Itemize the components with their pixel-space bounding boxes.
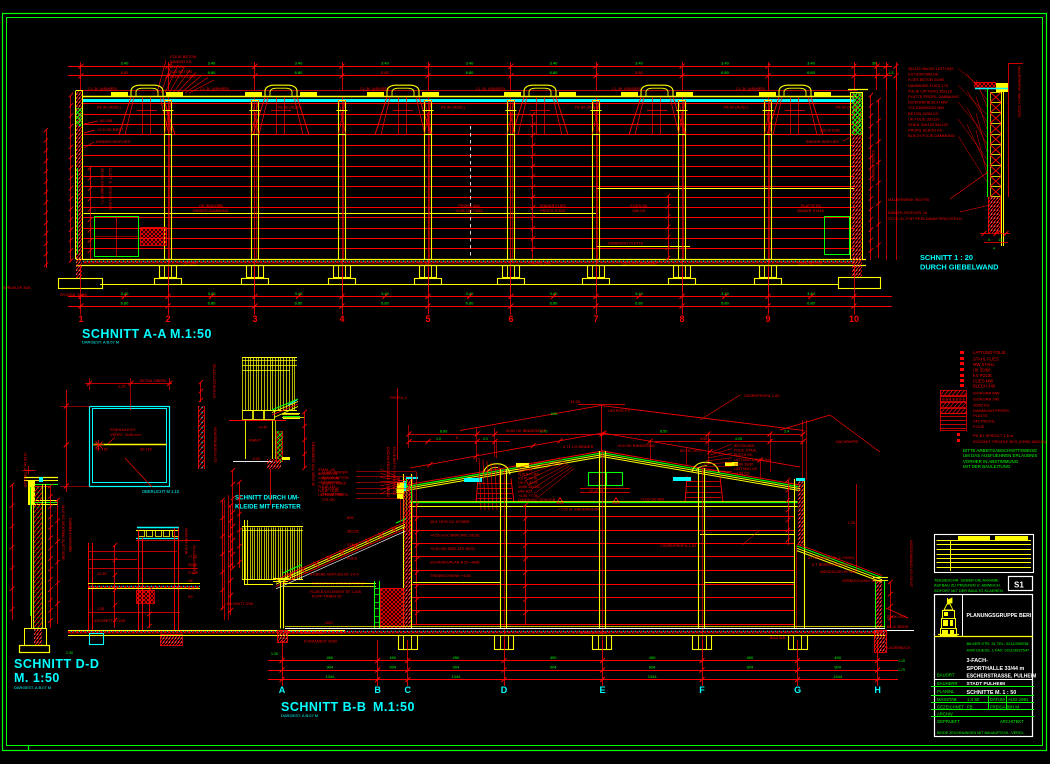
svg-text:PE 80 (AUSL): PE 80 (AUSL) [278, 106, 303, 110]
svg-text:6.80: 6.80 [121, 70, 130, 75]
svg-text:+8.80 OK BINDER/DAF: +8.80 OK BINDER/DAF [505, 428, 547, 433]
svg-text:MASSTAB: MASSTAB [937, 697, 957, 702]
svg-text:+8.5 OK BINDER/DN: +8.5 OK BINDER/DN [617, 443, 655, 448]
svg-text:904: 904 [834, 664, 841, 669]
svg-text:14.30: 14.30 [570, 399, 581, 404]
svg-text:GLATT B. SPIEGELROS: GLATT B. SPIEGELROS [108, 168, 112, 211]
svg-text:ALLE KS SICHTMW GLATT VERF: ALLE KS SICHTMW GLATT VERF [61, 505, 65, 561]
svg-text:S1: S1 [1014, 581, 1024, 590]
svg-text:PE 80 (AUSL): PE 80 (AUSL) [97, 106, 122, 110]
svg-text:8O OK 26TO: 8O OK 26TO [680, 449, 702, 453]
svg-text:KNAFT: KNAFT [249, 439, 262, 443]
svg-text:M.1:50: M.1:50 [170, 327, 212, 341]
svg-text:30: 30 [872, 62, 876, 66]
svg-text:4.05: 4.05 [735, 437, 742, 441]
svg-text:MW UK: MW UK [632, 209, 646, 213]
svg-text:4000 DUESS. 1 FAX: 0211/393: 4000 DUESS. 1 FAX: 0211/3937547 [967, 648, 1030, 653]
svg-text:MW STAHL: MW STAHL [973, 362, 995, 367]
svg-text:KS-MAUERWERK: KS-MAUERWERK [871, 150, 875, 182]
svg-text:45.8 +BTK DC DFWBR: 45.8 +BTK DC DFWBR [430, 520, 470, 524]
svg-text:D: D [501, 685, 508, 695]
svg-text:PLATTE KS: PLATTE KS [801, 204, 822, 208]
svg-text:+7.05: +7.05 [188, 555, 197, 559]
svg-text:+7.05 M. MAUERWERK: +7.05 M. MAUERWERK [558, 507, 600, 512]
svg-text:ISOKORB 175 BL: ISOKORB 175 BL [184, 528, 188, 555]
svg-text:BINDER FLIES: BINDER FLIES [540, 204, 566, 208]
svg-text:3.40: 3.40 [635, 61, 644, 66]
svg-text:ISOKORB BLECH 175: ISOKORB BLECH 175 [213, 427, 217, 462]
svg-text:SK 150: SK 150 [96, 448, 108, 452]
svg-text:6.80: 6.80 [721, 300, 730, 305]
svg-text:450: 450 [834, 655, 841, 660]
svg-text:3.40: 3.40 [466, 61, 475, 66]
svg-text:ANSCHLUSS KF BNE: ANSCHLUSS KF BNE [820, 570, 857, 574]
svg-text:4.05: 4.05 [700, 437, 707, 441]
svg-text:FOLIE: FOLIE [188, 571, 199, 575]
svg-text:B25: B25 [347, 516, 354, 520]
svg-text:(20)-IK ROB: (20)-IK ROB [820, 129, 840, 133]
svg-text:175 DAMMUNG MW: 175 DAMMUNG MW [908, 105, 944, 110]
svg-text:BINDER-ISOFLIES 2a: BINDER-ISOFLIES 2a [888, 210, 928, 215]
svg-text:1344: 1344 [648, 674, 658, 679]
svg-text:6.80: 6.80 [295, 70, 304, 75]
svg-text:-0.02: -0.02 [252, 457, 260, 461]
svg-text:UK FOLIE 35x120: UK FOLIE 35x120 [908, 116, 940, 121]
svg-text:PROFIL FOLIE: PROFIL FOLIE [540, 209, 566, 213]
svg-text:3.40: 3.40 [807, 61, 816, 66]
svg-text:GEWINDEST M12 VERZ 30: GEWINDEST M12 VERZ 30 [311, 442, 315, 486]
svg-text:CL-3K (ARMIER): CL-3K (ARMIER) [476, 87, 506, 91]
svg-text:1.5: 1.5 [889, 71, 894, 75]
svg-text:904: 904 [746, 664, 753, 669]
svg-text:450: 450 [649, 655, 656, 660]
svg-text:PE 80 (AUSL): PE 80 (AUSL) [575, 106, 600, 110]
svg-text:3.40: 3.40 [807, 291, 816, 296]
svg-text:PLANUNGSGRUPPE BERI: PLANUNGSGRUPPE BERI [967, 613, 1032, 619]
svg-text:BETON 30/60 KS: BETON 30/60 KS [908, 111, 939, 116]
svg-text:FB: FB [967, 704, 973, 709]
svg-text:35x120: 35x120 [347, 530, 359, 534]
svg-text:FOLIE STAHL: FOLIE STAHL [734, 449, 757, 453]
svg-text:3.40: 3.40 [635, 291, 644, 296]
svg-text:FLIES: FLIES [347, 557, 358, 561]
svg-text:G: G [794, 685, 801, 695]
svg-text:1 BORDPROFIL 1-60: 1 BORDPROFIL 1-60 [660, 544, 696, 548]
svg-text:E: E [599, 685, 605, 695]
svg-text:9: 9 [765, 314, 770, 324]
svg-text:30/60 30/60: 30/60 30/60 [734, 462, 753, 466]
svg-text:6.80: 6.80 [121, 300, 130, 305]
svg-text:6.80: 6.80 [550, 300, 559, 305]
svg-text:KLIPP-TRAEG 30: KLIPP-TRAEG 30 [312, 595, 342, 599]
svg-text:BILD B/B: BILD B/B [770, 636, 786, 640]
svg-text:40 15 40: 40 15 40 [589, 489, 603, 493]
svg-text:LATTUNG PROFIL: LATTUNG PROFIL [318, 493, 348, 497]
svg-text:6: 6 [508, 314, 513, 324]
svg-text:CL-3K (ARMIER): CL-3K (ARMIER) [88, 87, 118, 91]
svg-text:BETON DAMMUNG: BETON DAMMUNG [623, 261, 657, 265]
svg-text:904: 904 [550, 664, 557, 669]
svg-text:C: C [405, 685, 412, 695]
svg-text:35 ISO KS-MW 24 FL: 35 ISO KS-MW 24 FL [100, 168, 104, 205]
svg-text:SCHNITT DURCH UM-: SCHNITT DURCH UM- [235, 495, 299, 502]
svg-text:3.40: 3.40 [121, 291, 130, 296]
svg-text:3.40: 3.40 [295, 61, 304, 66]
svg-text:KS: KS [188, 595, 193, 599]
svg-text:450: 450 [746, 655, 753, 660]
svg-text:1.30: 1.30 [271, 652, 278, 656]
svg-text:15: 15 [998, 238, 1002, 242]
svg-text:6.80: 6.80 [208, 300, 217, 305]
svg-text:DAMMUNG FLIES 175: DAMMUNG FLIES 175 [908, 83, 948, 88]
svg-text:5: 5 [425, 314, 430, 324]
svg-text:450: 450 [453, 655, 460, 660]
svg-text:240 PROFIL: 240 PROFIL [973, 419, 996, 424]
svg-text:PROFIL MW: PROFIL MW [458, 204, 480, 208]
svg-text:3-FACH-: 3-FACH- [967, 658, 988, 664]
svg-text:450: 450 [326, 655, 333, 660]
svg-text:I-BORDPROFIL 1-60: I-BORDPROFIL 1-60 [744, 394, 780, 398]
svg-text:2.4: 2.4 [784, 430, 789, 434]
svg-text:14.35: 14.35 [97, 572, 107, 576]
svg-text:LATTUNG UK: LATTUNG UK [734, 467, 758, 471]
svg-text:1.35: 1.35 [97, 607, 104, 611]
svg-text:UK: UK [188, 579, 194, 583]
svg-text:SCHNITT B-B: SCHNITT B-B [281, 700, 366, 714]
svg-text:606: 606 [551, 412, 557, 416]
svg-text:OBERLICHT M 1:10: OBERLICHT M 1:10 [142, 489, 180, 494]
svg-text:PLATTE PROFIL DAMMUNG: PLATTE PROFIL DAMMUNG [908, 94, 959, 99]
svg-text:DARGEST. A B.07 M: DARGEST. A B.07 M [82, 340, 119, 345]
svg-text:6.80: 6.80 [466, 300, 475, 305]
svg-text:LATTUNG DAMMUNG: LATTUNG DAMMUNG [734, 458, 772, 462]
svg-text:F: F [699, 685, 705, 695]
svg-text:6.80: 6.80 [295, 300, 304, 305]
svg-text:B: B [374, 685, 381, 695]
svg-text:6.80: 6.80 [807, 70, 816, 75]
svg-text:30/60: 30/60 [188, 563, 197, 567]
svg-text:6.80: 6.80 [208, 70, 217, 75]
svg-text:450: 450 [389, 655, 396, 660]
svg-text:3.40: 3.40 [721, 291, 730, 296]
svg-text:UNTERS P.3: UNTERS P.3 [608, 409, 630, 413]
svg-text:-ASCHNITT 0/28: -ASCHNITT 0/28 [225, 602, 253, 606]
svg-text:6.80: 6.80 [635, 70, 644, 75]
svg-text:TRENNSCHIENE +4.85: TRENNSCHIENE +4.85 [430, 574, 471, 578]
svg-text:3.40: 3.40 [295, 291, 304, 296]
svg-text:1.30: 1.30 [66, 651, 73, 655]
svg-text:1.25: 1.25 [848, 521, 855, 525]
svg-text:GEZEICHNET: GEZEICHNET [937, 704, 964, 709]
svg-text:AUSSENWAND KS-SICHT: AUSSENWAND KS-SICHT [909, 540, 914, 588]
svg-text:BETON B25: BETON B25 [734, 444, 754, 448]
svg-text:ARCHITEKT: ARCHITEKT [1000, 719, 1024, 724]
svg-text:A: A [279, 685, 286, 695]
svg-text:FLIES OK: FLIES OK [630, 204, 648, 208]
svg-text:H: H [874, 685, 881, 695]
svg-text:BINDER-ISOFLIES: BINDER-ISOFLIES [96, 139, 131, 144]
svg-text:FUNDAMENT 30/60: FUNDAMENT 30/60 [304, 640, 337, 644]
svg-text:30/60 BETON: 30/60 BETON [798, 261, 822, 265]
svg-text:450: 450 [550, 655, 557, 660]
svg-text:+4.55 LATTUNG: +4.55 LATTUNG [455, 209, 483, 213]
svg-text:3.40: 3.40 [550, 291, 559, 296]
svg-text:6.80: 6.80 [466, 70, 475, 75]
svg-text:ASCHNITT B 0/28: ASCHNITT B 0/28 [94, 619, 125, 623]
svg-text:ATTERRAND (BK 2. FUGE): ATTERRAND (BK 2. FUGE) [808, 556, 854, 560]
svg-text:UG2: UG2 [325, 621, 333, 625]
svg-text:ISOKORB BLECH MW: ISOKORB BLECH MW [908, 100, 948, 105]
svg-text:KLEIDE MIT FENSTER: KLEIDE MIT FENSTER [235, 504, 301, 511]
svg-text:M. 1:50: M. 1:50 [14, 671, 60, 685]
svg-text:PROFIL BLECH KS: PROFIL BLECH KS [908, 128, 943, 133]
svg-text:3.40: 3.40 [550, 61, 559, 66]
svg-text:3.40: 3.40 [381, 291, 390, 296]
svg-text:DARGEST. A B.07 M: DARGEST. A B.07 M [281, 713, 318, 718]
svg-text:BEIDE ZEICHNUNGEN MIT BAUAUFSC: BEIDE ZEICHNUNGEN MIT BAUAUFSCHL. VERGL. [937, 731, 1025, 735]
svg-text:AUG.1991: AUG.1991 [1008, 697, 1029, 702]
svg-text:FREIGAB: FREIGAB [990, 704, 1009, 709]
svg-text:BAUORT: BAUORT [937, 673, 955, 678]
svg-text:1344: 1344 [833, 674, 843, 679]
svg-text:904: 904 [326, 664, 333, 669]
svg-text:ISOKORB 240: ISOKORB 240 [973, 397, 1000, 402]
svg-text:LAGERBOCK: LAGERBOCK [887, 646, 911, 650]
svg-text:1: 1 [78, 314, 83, 324]
svg-text:DAMMUNG PLATTE: DAMMUNG PLATTE [608, 242, 644, 246]
svg-text:CL-3K (ARMIER): CL-3K (ARMIER) [360, 87, 390, 91]
svg-text:1:4 50: 1:4 50 [967, 697, 980, 702]
svg-text:SCHIENENPLAN B.25 +HBB: SCHIENENPLAN B.25 +HBB [430, 561, 480, 565]
svg-text:BO-BB: BO-BB [100, 118, 113, 123]
svg-text:KS FOLIE: KS FOLIE [973, 373, 992, 378]
svg-text:ZEBULEX B/B: ZEBULEX B/B [300, 631, 324, 635]
svg-text:GEPRUEFT: GEPRUEFT [937, 719, 960, 724]
svg-text:SCHNITT D-D: SCHNITT D-D [14, 657, 99, 671]
svg-text:1.25: 1.25 [118, 383, 126, 388]
svg-text:+4.50 MD EBELATE B/RO: +4.50 MD EBELATE B/RO [430, 547, 475, 551]
svg-text:VERST. 2x45 mm: VERST. 2x45 mm [110, 432, 141, 437]
svg-text:OK ISOKORB: OK ISOKORB [199, 204, 223, 208]
svg-text:PROFIL 240: PROFIL 240 [530, 261, 551, 265]
svg-text:6.80: 6.80 [381, 300, 390, 305]
svg-text:+4.55 KS: +4.55 KS [734, 472, 750, 476]
svg-text:3.40: 3.40 [208, 291, 217, 296]
svg-text:PE 80 (AUSL): PE 80 (AUSL) [724, 106, 749, 110]
svg-text:3.40: 3.40 [721, 61, 730, 66]
svg-text:VERBLECHUNG 45): VERBLECHUNG 45) [842, 579, 876, 583]
svg-text:PROFIL 2: PROFIL 2 [390, 396, 407, 400]
svg-text:M.1:50: M.1:50 [373, 700, 415, 714]
svg-text:4.71 LG BINDER: 4.71 LG BINDER [563, 444, 594, 449]
svg-text:UK 30/60: UK 30/60 [973, 367, 991, 372]
svg-text:DACHPAPPE: DACHPAPPE [836, 440, 859, 444]
svg-text:4: 4 [993, 247, 995, 251]
svg-text:4: 4 [339, 314, 344, 324]
svg-text:904: 904 [649, 664, 656, 669]
svg-text:+4.40: +4.40 [258, 426, 267, 430]
svg-text:BH M: BH M [1008, 704, 1019, 709]
svg-text:6.80: 6.80 [550, 70, 559, 75]
svg-text:ZEBULEX 30/30: ZEBULEX 30/30 [580, 631, 607, 635]
svg-text:7: 7 [593, 314, 598, 324]
svg-text:CL-3K (ARMIER): CL-3K (ARMIER) [200, 87, 230, 91]
svg-text:1.70: 1.70 [898, 668, 905, 672]
svg-text:904: 904 [389, 664, 396, 669]
svg-text:PE 80 (AUSL): PE 80 (AUSL) [441, 106, 466, 110]
svg-text:DAEMM 8 ISOKORB: DAEMM 8 ISOKORB [68, 518, 72, 552]
svg-text:BINDER-ISOFLIES: BINDER-ISOFLIES [806, 140, 839, 144]
svg-text:SCHNITT 1 : 20: SCHNITT 1 : 20 [920, 253, 973, 262]
svg-text:DATUM: DATUM [990, 697, 1005, 702]
svg-text:FOLIE BET.PL STAHLTRAPEZ: FOLIE BET.PL STAHLTRAPEZ [392, 447, 396, 496]
svg-text:KONTAKT. PROFILE BCS (OHNE ABZ: KONTAKT. PROFILE BCS (OHNE ABZUG) [973, 440, 1047, 444]
svg-text:1344: 1344 [325, 674, 335, 679]
svg-text:35x120 LATTUNG KS: 35x120 LATTUNG KS [212, 364, 216, 399]
svg-text:6.80: 6.80 [807, 300, 816, 305]
svg-text:FOLIE LATTUNG 35x120: FOLIE LATTUNG 35x120 [908, 88, 953, 93]
svg-text:+7.05 OK MW: +7.05 OK MW [640, 498, 664, 502]
svg-text:FLUR-B 5 ELEMENT BT 1-045: FLUR-B 5 ELEMENT BT 1-045 [310, 590, 361, 594]
svg-text:STAHL: STAHL [347, 543, 359, 547]
svg-text:3.40: 3.40 [381, 61, 390, 66]
svg-text:3.40: 3.40 [208, 61, 217, 66]
svg-text:B25: B25 [188, 587, 194, 591]
svg-text:DARGEST. A B.07 M: DARGEST. A B.07 M [14, 685, 51, 690]
svg-text:904: 904 [453, 664, 460, 669]
svg-text:UM DAS AUSFUEHREN ERLAUBNIS: UM DAS AUSFUEHREN ERLAUBNIS [963, 453, 1037, 458]
svg-text:CL-3K (ARMIER): CL-3K (ARMIER) [736, 87, 766, 91]
svg-text:SPORTHALLE 33/44 m: SPORTHALLE 33/44 m [967, 666, 1025, 672]
svg-text:ISOKORB MW: ISOKORB MW [973, 391, 1000, 396]
svg-text:MIT DER BAULEITUNG: MIT DER BAULEITUNG [963, 464, 1011, 469]
svg-text:2.0: 2.0 [483, 437, 488, 441]
svg-text:8: 8 [456, 435, 458, 440]
svg-text:BILKER STR. 31 TEL: 0211/399: BILKER STR. 31 TEL: 0211/399238 [967, 641, 1029, 646]
svg-text:25 BK KIES: 25 BK KIES [887, 615, 907, 619]
svg-text:PLAN/NL: PLAN/NL [937, 689, 955, 694]
svg-text:1.15: 1.15 [898, 659, 905, 663]
svg-text:FOLIE: FOLIE [973, 424, 985, 429]
svg-text:MAUERWERK SICHTB: MAUERWERK SICHTB [888, 197, 929, 202]
svg-text:8-EBENE ISOFLIES BT 1-0.5: 8-EBENE ISOFLIES BT 1-0.5 [310, 573, 359, 577]
svg-text:DURCH GIEBELWAND: DURCH GIEBELWAND [920, 263, 999, 272]
svg-text:ARCHIV: ARCHIV [937, 711, 953, 716]
svg-text:BLECH OK: BLECH OK [734, 453, 753, 457]
svg-text:6.80: 6.80 [721, 70, 730, 75]
svg-text:3: 3 [252, 314, 257, 324]
svg-text:STAHL 35x120 35x120: STAHL 35x120 35x120 [908, 122, 949, 127]
svg-text:CL-3K (ARMIER): CL-3K (ARMIER) [612, 87, 642, 91]
svg-text:8.80: 8.80 [440, 430, 447, 434]
svg-text:8: 8 [679, 314, 684, 324]
svg-text:+4.55 (+DC BRPLATE 18/18): +4.55 (+DC BRPLATE 18/18) [430, 534, 480, 538]
svg-text:175 OK: 175 OK [322, 498, 335, 502]
svg-text:PK BT SPIEGLT 1.5 m: PK BT SPIEGLT 1.5 m [973, 433, 1014, 438]
svg-text:LATTUNG FOLIE: LATTUNG FOLIE [973, 350, 1006, 355]
svg-text:ESCHERSTRASSE, PULHEIM: ESCHERSTRASSE, PULHEIM [967, 673, 1037, 679]
svg-text:10: 10 [849, 314, 859, 324]
svg-text:FLIES BETON 30/60: FLIES BETON 30/60 [908, 77, 945, 82]
svg-text:1.0: 1.0 [436, 437, 441, 441]
svg-text:3.40: 3.40 [466, 291, 475, 296]
svg-text:+2.5 OK BRST: +2.5 OK BRST [97, 127, 124, 132]
svg-text:BLECH FOLIE DAMMUNG: BLECH FOLIE DAMMUNG [908, 133, 955, 138]
svg-text:SOFORT MIT DER BAULTG KLAEREN: SOFORT MIT DER BAULTG KLAEREN [934, 588, 1003, 593]
svg-text:2: 2 [165, 314, 170, 324]
svg-text:BINDER DAMMUNG: BINDER DAMMUNG [193, 209, 228, 213]
svg-text:KS B25: KS B25 [419, 261, 432, 265]
svg-text:BLECH 240: BLECH 240 [973, 383, 996, 388]
svg-text:35x120 35x120 LATTUNG: 35x120 35x120 LATTUNG [908, 66, 954, 71]
svg-text:6.80: 6.80 [635, 300, 644, 305]
svg-text:OK 240: OK 240 [184, 261, 197, 265]
svg-text:MAUERWERK NACH STATIK: MAUERWERK NACH STATIK [1017, 66, 1022, 118]
svg-text:3.40: 3.40 [121, 61, 130, 66]
svg-text:BINDER STAHL: BINDER STAHL [797, 209, 824, 213]
svg-text:STAHL FLIES: STAHL FLIES [973, 356, 999, 361]
svg-text:DETAIL OBERL: DETAIL OBERL [140, 378, 168, 383]
svg-text:6.80: 6.80 [381, 70, 390, 75]
svg-text:PLATTE: PLATTE [973, 413, 988, 418]
svg-text:1344: 1344 [451, 674, 461, 679]
svg-text:5: 5 [988, 238, 990, 242]
svg-text:8.50: 8.50 [660, 430, 667, 434]
svg-text:SK 150: SK 150 [140, 448, 152, 452]
svg-text:SPRUELER 30/6: SPRUELER 30/6 [3, 286, 30, 290]
svg-text:30/60 KS: 30/60 KS [973, 402, 990, 407]
svg-text:STCK GL-P BT PERLDAMM SPACHTEL: STCK GL-P BT PERLDAMM SPACHTELN [888, 216, 962, 221]
svg-text:+8.85 OK ATTIKA B28: +8.85 OK ATTIKA B28 [23, 452, 27, 487]
svg-text:K.T BERGFLIES TP/B.T: K.T BERGFLIES TP/B.T [812, 563, 853, 567]
svg-text:KS ISOKORB UK: KS ISOKORB UK [908, 72, 939, 77]
svg-text:BAUHERR: BAUHERR [937, 681, 957, 686]
